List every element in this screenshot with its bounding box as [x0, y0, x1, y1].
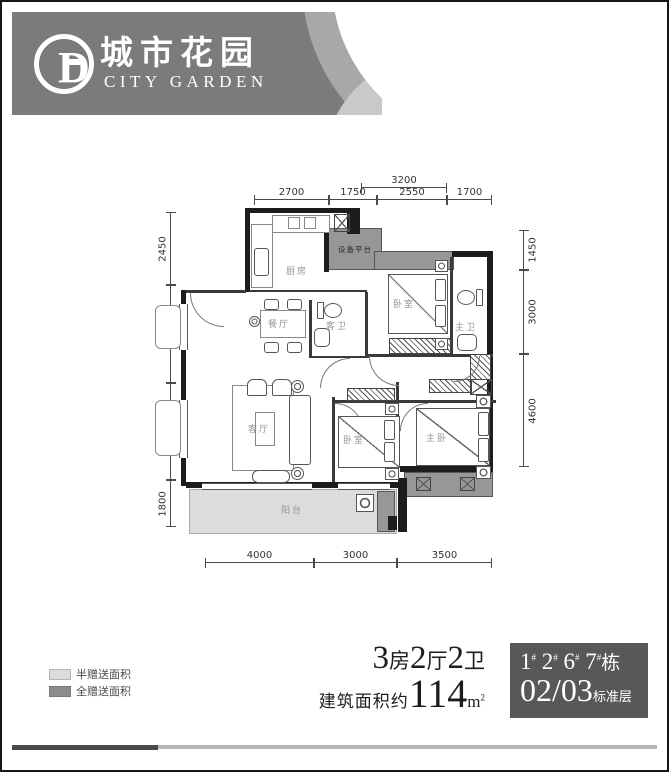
wall-segment — [388, 516, 397, 530]
sofa-icon — [289, 395, 311, 465]
dim-left-1: 2450 — [170, 212, 171, 285]
dim-left-4: 1800 — [170, 480, 171, 527]
wall-segment — [249, 290, 367, 292]
nightstand-icon — [385, 468, 399, 480]
badge-floor-line: 02/03标准层 — [520, 674, 648, 708]
footer-bar-light — [158, 745, 657, 749]
toilet-icon — [324, 303, 342, 318]
equipment-platform-label: 设备平台 — [338, 244, 372, 255]
wall-segment — [245, 208, 359, 213]
room-label-living: 客厅 — [248, 422, 270, 435]
building-area-text: 建筑面积约 114 m2 — [319, 674, 485, 714]
room-label-dining: 餐厅 — [268, 317, 290, 330]
chair-icon — [287, 299, 302, 310]
flue-icon — [334, 214, 350, 232]
dim-bottom-3: 3500 — [397, 562, 492, 563]
legend-label-full: 全赠送面积 — [76, 683, 131, 699]
legend-item-full-gift: 全赠送面积 — [49, 683, 131, 699]
area-value: 114 — [409, 674, 468, 714]
room-label-kitchen: 厨房 — [286, 264, 308, 277]
footer-bar-dark — [12, 745, 158, 750]
wall-segment — [398, 478, 407, 532]
wall-segment — [365, 292, 368, 356]
chair-icon — [264, 342, 279, 353]
stove-burner-icon — [304, 217, 316, 229]
pillow-icon — [384, 420, 395, 440]
dim-top-2: 1750 — [329, 199, 377, 200]
sink-icon — [254, 248, 269, 276]
washing-machine-icon — [356, 494, 374, 512]
logo-d-letter: D — [58, 46, 90, 90]
nightstand-icon — [435, 260, 448, 272]
dim-right-2: 3000 — [523, 270, 524, 354]
door-arc-icon — [190, 293, 224, 327]
dim-bottom-2: 3000 — [314, 562, 397, 563]
room-label-guest-bath: 客卫 — [326, 319, 348, 332]
area-prefix: 建筑面积约 — [319, 687, 409, 712]
toilet-icon — [457, 290, 475, 305]
legend-label-half: 半赠送面积 — [76, 666, 131, 682]
bay-window-icon — [155, 400, 181, 456]
room-label-master-bedroom: 主卧 — [426, 431, 448, 444]
dim-right-1: 1450 — [523, 230, 524, 270]
wall-segment — [245, 208, 250, 292]
window-icon — [202, 483, 312, 490]
pillow-icon — [435, 279, 446, 301]
room-label-bedroom: 卧室 — [393, 297, 415, 310]
pillow-icon — [384, 442, 395, 462]
wall-segment — [324, 228, 329, 272]
nightstand-icon — [435, 338, 448, 350]
building-badge: 1# 2# 6# 7#栋 02/03标准层 — [510, 643, 648, 718]
door-arc-icon — [320, 358, 350, 388]
brand-name-chinese: 城市花园 — [100, 26, 260, 74]
washbasin-icon — [457, 334, 477, 351]
area-unit: m2 — [467, 692, 485, 712]
brand-name-english: CITY GARDEN — [104, 72, 268, 92]
side-table-icon — [291, 380, 304, 393]
dim-top-3: 2550 — [377, 199, 447, 200]
pillow-icon — [435, 305, 446, 327]
armchair-icon — [272, 379, 292, 396]
legend-item-half-gift: 半赠送面积 — [49, 666, 131, 682]
armchair-icon — [247, 379, 267, 396]
dim-right-3: 4600 — [523, 354, 524, 467]
nightstand-icon — [476, 395, 491, 408]
door-arc-icon — [369, 356, 399, 386]
table-lamp-icon — [249, 316, 260, 327]
floorplan-flyer: D 城市花园 CITY GARDEN 3200 2700 1750 2550 1… — [0, 0, 669, 772]
kitchen-counter-icon — [272, 215, 330, 233]
logo-banner: D 城市花园 CITY GARDEN — [12, 12, 382, 115]
pillow-icon — [478, 412, 489, 436]
pillow-icon — [478, 438, 489, 462]
plant-icon — [460, 477, 475, 491]
window-icon — [338, 483, 390, 490]
chair-icon — [287, 342, 302, 353]
wardrobe-icon — [347, 388, 395, 401]
chair-icon — [264, 299, 279, 310]
room-label-bedroom-mid: 卧室 — [343, 433, 365, 446]
bench-icon — [252, 470, 290, 483]
bay-window-icon — [155, 305, 181, 349]
wall-segment — [309, 300, 312, 358]
nightstand-icon — [476, 466, 491, 479]
toilet-tank-icon — [317, 302, 324, 319]
legend-swatch-half — [49, 669, 71, 680]
toilet-tank-icon — [476, 289, 483, 306]
room-label-balcony: 阳台 — [281, 503, 303, 516]
shaft-icon — [470, 379, 492, 395]
nightstand-icon — [385, 403, 399, 415]
wardrobe-icon — [429, 379, 472, 393]
dim-bottom-1: 4000 — [205, 562, 314, 563]
plant-icon — [416, 477, 431, 491]
side-table-icon — [291, 467, 304, 480]
dim-top-4: 1700 — [447, 199, 492, 200]
stove-burner-icon — [288, 217, 300, 229]
badge-buildings-line: 1# 2# 6# 7#栋 — [520, 649, 648, 674]
room-label-master-bath: 主卫 — [455, 320, 477, 333]
legend-swatch-full — [49, 686, 71, 697]
wall-segment — [309, 356, 369, 358]
dim-top-1: 2700 — [254, 199, 329, 200]
